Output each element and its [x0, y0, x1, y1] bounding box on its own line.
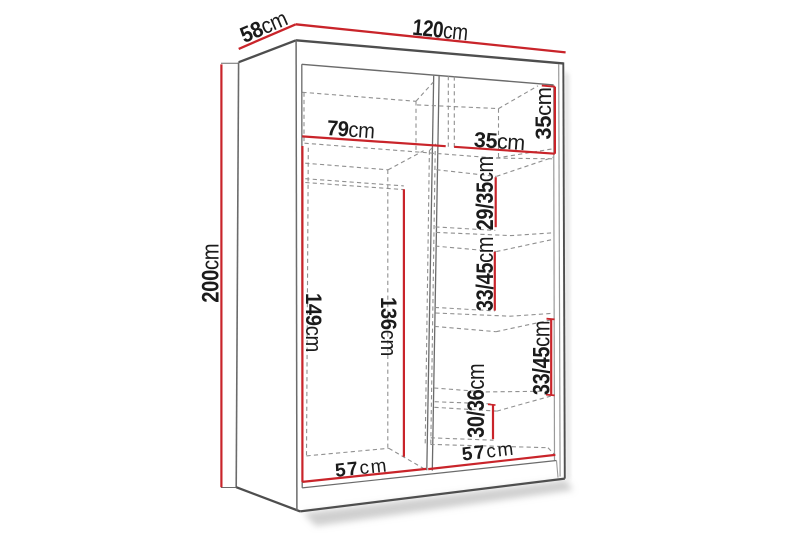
svg-text:33/45cm: 33/45cm	[527, 321, 554, 395]
svg-text:33/45cm: 33/45cm	[471, 237, 498, 311]
svg-text:30/36cm: 30/36cm	[462, 364, 489, 438]
svg-text:136cm: 136cm	[376, 297, 400, 356]
svg-text:149cm: 149cm	[301, 293, 325, 352]
svg-text:35cm: 35cm	[473, 128, 526, 155]
svg-text:35cm: 35cm	[531, 87, 556, 139]
svg-text:79cm: 79cm	[326, 116, 375, 143]
svg-text:200cm: 200cm	[197, 244, 224, 303]
svg-text:29/35cm: 29/35cm	[471, 156, 498, 230]
